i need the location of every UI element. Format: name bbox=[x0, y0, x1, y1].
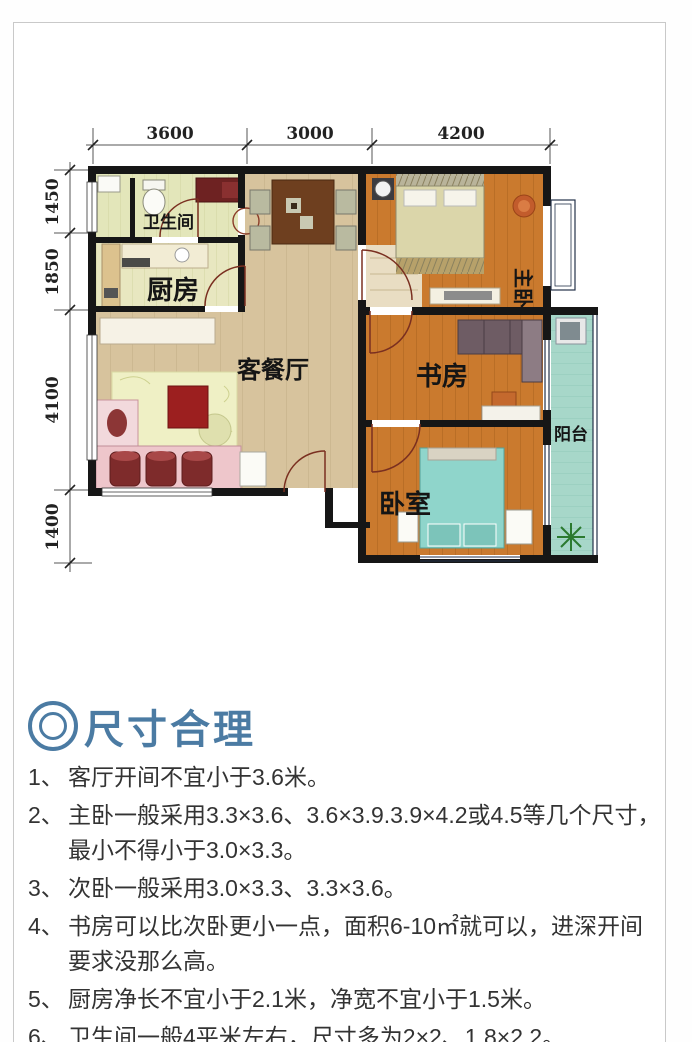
master-bay-window bbox=[551, 200, 575, 290]
list-item: 6、 卫生间一般4平米左右，尺寸多为2×2、1.8×2.2。 bbox=[28, 1020, 664, 1042]
kitchen-sink bbox=[175, 248, 189, 262]
label-study: 书房 bbox=[416, 361, 468, 391]
item-number: 1、 bbox=[28, 760, 68, 795]
bedroom-balcony-window bbox=[545, 445, 549, 525]
item-number: 2、 bbox=[28, 798, 68, 868]
list-item: 5、 厨房净长不宜小于2.1米，净宽不宜小于1.5米。 bbox=[28, 982, 664, 1017]
label-master-bedroom: 主卧 bbox=[511, 268, 535, 308]
nightstand bbox=[506, 510, 532, 544]
pillow bbox=[444, 190, 476, 206]
label-kitchen: 厨房 bbox=[147, 275, 199, 305]
label-living-dining: 客餐厅 bbox=[237, 356, 309, 384]
article-page: 3600 3000 4200 1450 1850 4100 1400 bbox=[0, 0, 692, 1042]
side-table bbox=[240, 452, 266, 486]
tv bbox=[444, 291, 492, 300]
living-cabinet bbox=[100, 318, 215, 344]
balcony-plant bbox=[557, 523, 585, 551]
list-item: 2、 主卧一般采用3.3×3.6、3.6×3.9.3.9×4.2或4.5等几个尺… bbox=[28, 798, 664, 868]
item-number: 3、 bbox=[28, 871, 68, 906]
dining-chair bbox=[250, 226, 270, 250]
list-item: 1、 客厅开间不宜小于3.6米。 bbox=[28, 760, 664, 795]
stove bbox=[122, 258, 150, 267]
guideline-list: 1、 客厅开间不宜小于3.6米。 2、 主卧一般采用3.3×3.6、3.6×3.… bbox=[28, 760, 664, 1042]
item-text: 卫生间一般4平米左右，尺寸多为2×2、1.8×2.2。 bbox=[68, 1020, 664, 1042]
dining-chair bbox=[336, 190, 356, 214]
item-text: 次卧一般采用3.0×3.3、3.3×3.6。 bbox=[68, 871, 664, 906]
dimension-guidelines-section: 尺寸合理 1、 客厅开间不宜小于3.6米。 2、 主卧一般采用3.3×3.6、3… bbox=[28, 698, 664, 1042]
pillow bbox=[404, 190, 436, 206]
study-balcony-window bbox=[545, 340, 549, 410]
dim-left-4100: 4100 bbox=[43, 376, 63, 423]
section-heading: 尺寸合理 bbox=[28, 698, 664, 754]
dining-table bbox=[272, 180, 334, 244]
item-text: 厨房净长不宜小于2.1米，净宽不宜小于1.5米。 bbox=[68, 982, 664, 1017]
dim-left-1850: 1850 bbox=[43, 248, 63, 295]
coffee-table bbox=[168, 386, 208, 428]
label-bedroom: 卧室 bbox=[379, 489, 431, 519]
bed-quilt bbox=[428, 524, 460, 546]
item-number: 4、 bbox=[28, 909, 68, 979]
dining-chair bbox=[336, 226, 356, 250]
dim-top-3000: 3000 bbox=[286, 124, 333, 144]
item-text: 书房可以比次卧更小一点，面积6-10㎡就可以，进深开间要求没那么高。 bbox=[68, 909, 664, 979]
dim-top-3600: 3600 bbox=[146, 124, 193, 144]
list-item: 4、 书房可以比次卧更小一点，面积6-10㎡就可以，进深开间要求没那么高。 bbox=[28, 909, 664, 979]
dim-top-4200: 4200 bbox=[437, 124, 484, 144]
kitchen-tall-cabinet bbox=[102, 244, 120, 310]
bathroom-sink bbox=[98, 176, 120, 192]
study-sofa-corner bbox=[522, 320, 542, 382]
item-number: 5、 bbox=[28, 982, 68, 1017]
dining-chair bbox=[250, 190, 270, 214]
floor-plan: 3600 3000 4200 1450 1850 4100 1400 bbox=[0, 0, 692, 650]
label-balcony: 阳台 bbox=[554, 424, 588, 444]
section-heading-label: 尺寸合理 bbox=[84, 697, 256, 755]
dim-left-1400: 1400 bbox=[43, 503, 63, 550]
dim-left-1450: 1450 bbox=[43, 178, 63, 225]
item-text: 主卧一般采用3.3×3.6、3.6×3.9.3.9×4.2或4.5等几个尺寸，最… bbox=[68, 798, 664, 868]
bedroom-bed-head bbox=[428, 448, 496, 460]
sofa-pillow bbox=[107, 409, 127, 437]
item-number: 6、 bbox=[28, 1020, 68, 1042]
list-item: 3、 次卧一般采用3.0×3.3、3.3×3.6。 bbox=[28, 871, 664, 906]
item-text: 客厅开间不宜小于3.6米。 bbox=[68, 760, 664, 795]
double-circle-icon bbox=[28, 701, 78, 751]
study-desk bbox=[482, 406, 540, 421]
label-bathroom: 卫生间 bbox=[143, 212, 194, 232]
bed-quilt bbox=[464, 524, 496, 546]
bedside-lamp bbox=[375, 181, 391, 197]
